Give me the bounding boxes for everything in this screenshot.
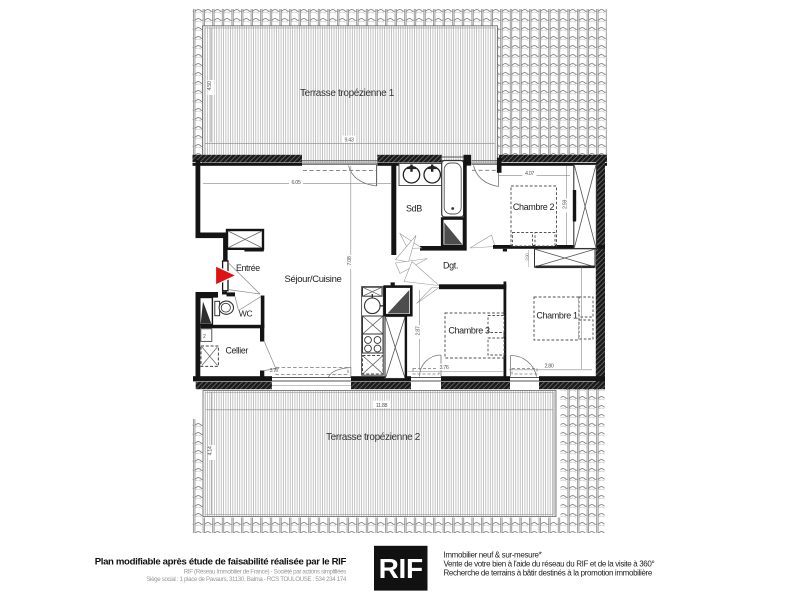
svg-text:7.08: 7.08 (347, 256, 353, 265)
svg-text:Dgt.: Dgt. (443, 261, 458, 271)
svg-text:Terrasse tropézienne 2: Terrasse tropézienne 2 (326, 432, 421, 443)
svg-text:3.76: 3.76 (439, 365, 448, 371)
svg-text:4.50: 4.50 (207, 81, 213, 90)
svg-text:Entrée: Entrée (236, 263, 260, 273)
svg-text:Siège social : 1 place de Pava: Siège social : 1 place de Pavaurs, 31130… (146, 576, 347, 583)
svg-text:4.07: 4.07 (525, 171, 534, 177)
svg-text:Recherche de terrains à bâtir: Recherche de terrains à bâtir destinés à… (444, 569, 653, 578)
svg-text:RIF (Réseau Immobilier de Fran: RIF (Réseau Immobilier de France) - Soci… (184, 569, 346, 576)
svg-text:Plan modifiable après étude de: Plan modifiable après étude de faisabili… (95, 557, 347, 568)
svg-text:Séjour/Cuisine: Séjour/Cuisine (285, 274, 342, 285)
svg-text:Immobilier neuf & sur-mesure*: Immobilier neuf & sur-mesure* (444, 551, 542, 560)
svg-text:SdB: SdB (406, 204, 422, 214)
svg-text:Cellier: Cellier (226, 346, 249, 356)
svg-text:6.05: 6.05 (291, 180, 300, 186)
svg-text:0.90: 0.90 (525, 253, 530, 261)
svg-text:2.59: 2.59 (563, 200, 569, 209)
svg-text:11.88: 11.88 (376, 403, 388, 409)
svg-text:Chambre 1: Chambre 1 (536, 311, 578, 321)
svg-text:4.14: 4.14 (208, 446, 214, 455)
svg-text:2.80: 2.80 (544, 364, 553, 370)
svg-text:WC: WC (239, 309, 253, 319)
svg-text:Vente de votre bien à l'aide d: Vente de votre bien à l'aide du réseau d… (444, 560, 655, 569)
svg-text:Terrasse tropézienne 1: Terrasse tropézienne 1 (300, 88, 395, 99)
svg-text:3.77: 3.77 (269, 368, 278, 374)
svg-text:9.43: 9.43 (344, 138, 353, 144)
svg-text:Chambre 2: Chambre 2 (513, 202, 555, 212)
svg-text:2.87: 2.87 (416, 326, 422, 335)
svg-text:Chambre 3: Chambre 3 (448, 326, 490, 336)
svg-text:RIF: RIF (379, 553, 423, 584)
